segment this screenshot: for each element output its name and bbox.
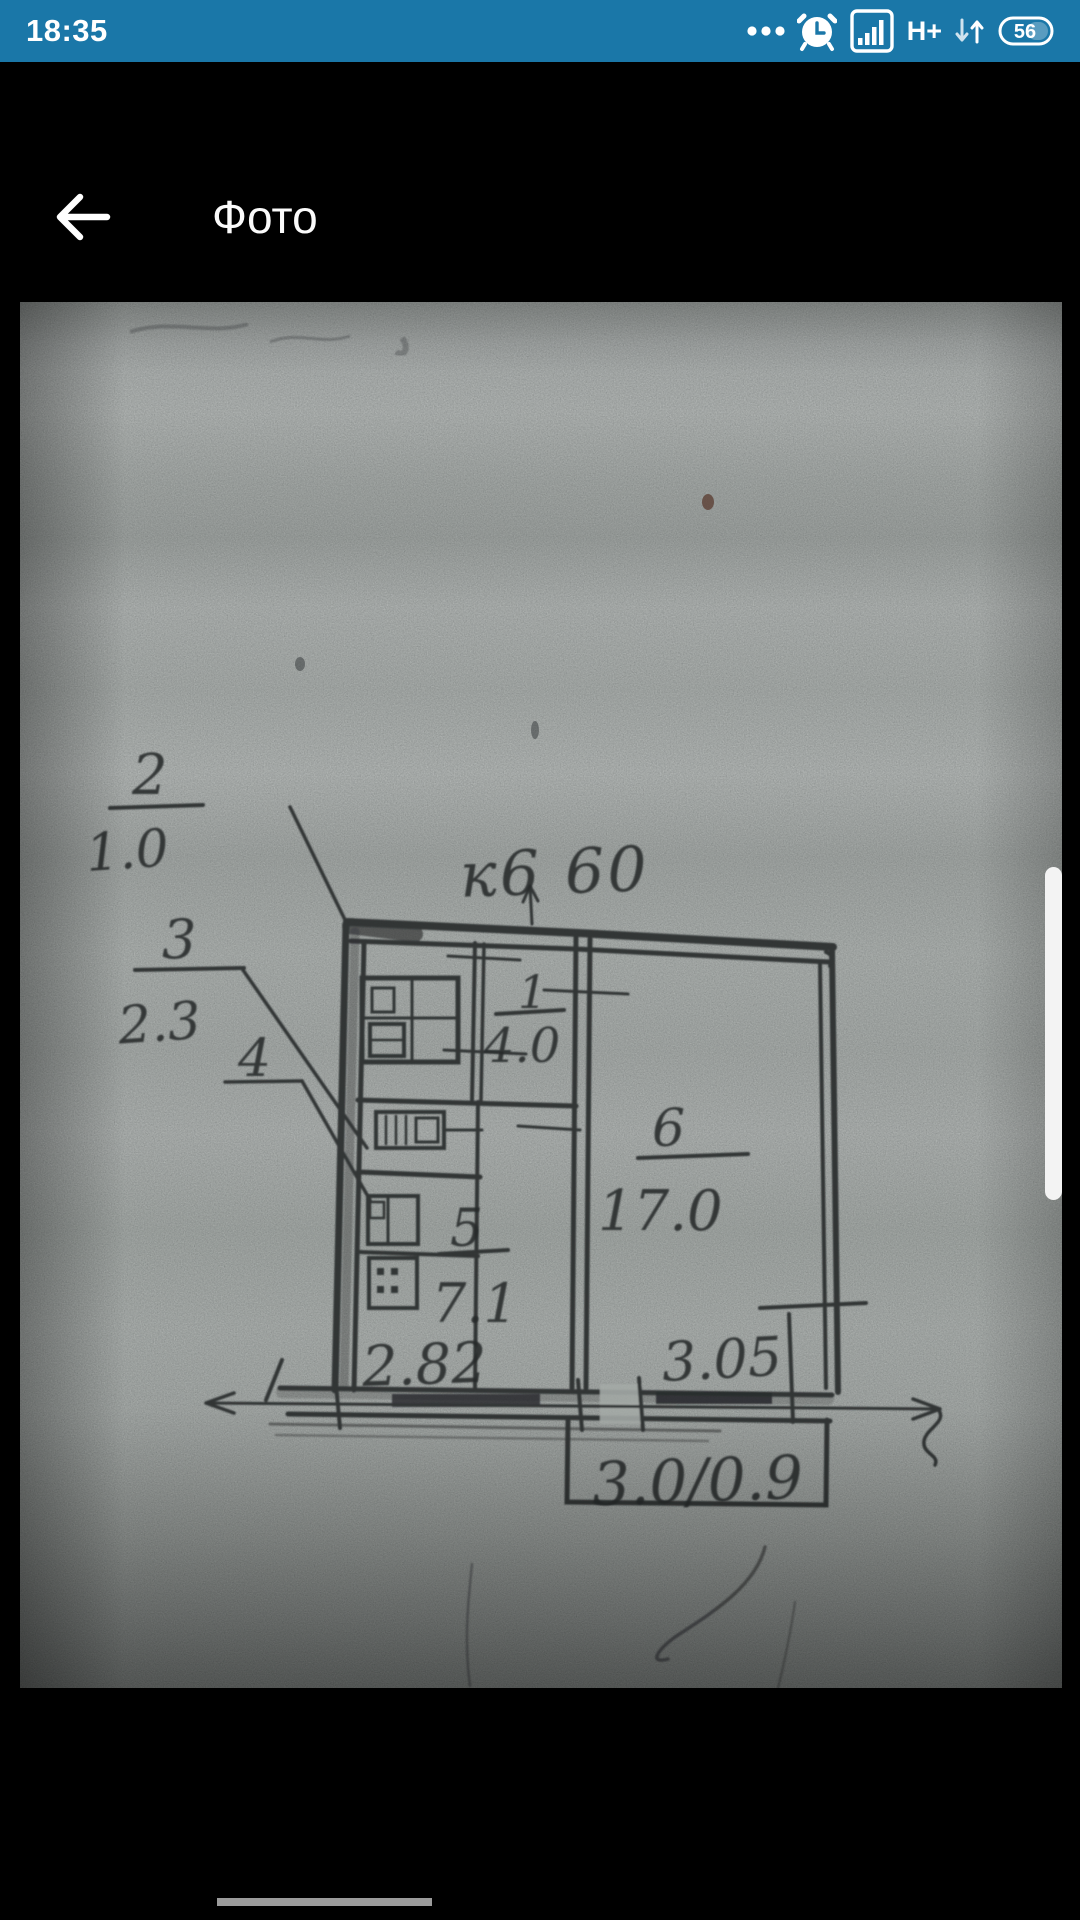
horizontal-scroll-indicator[interactable] xyxy=(217,1898,432,1906)
app-bar: Фото xyxy=(0,62,1080,262)
floor-plan-image: к6 60 2 1.0 3 2.3 4 1 4.0 6 17.0 5 7.1 2… xyxy=(20,302,1062,1688)
clock-time: 18:35 xyxy=(26,13,108,49)
phone-screen: 18:35 H+ xyxy=(0,0,1080,1920)
status-bar: 18:35 H+ xyxy=(0,0,1080,62)
photo-viewer[interactable]: к6 60 2 1.0 3 2.3 4 1 4.0 6 17.0 5 7.1 2… xyxy=(20,302,1062,1688)
battery-indicator: 56 xyxy=(998,16,1054,46)
network-type-label: H+ xyxy=(907,16,942,47)
back-button[interactable] xyxy=(44,187,114,247)
data-arrows-icon xyxy=(954,14,986,48)
battery-percent-text: 56 xyxy=(1014,21,1036,43)
page-title: Фото xyxy=(212,190,318,244)
alarm-clock-icon xyxy=(797,10,837,52)
vertical-scrollbar-thumb[interactable] xyxy=(1045,867,1062,1200)
more-dots-icon xyxy=(747,24,785,38)
signal-strength-icon xyxy=(849,8,895,54)
status-icons: H+ 56 xyxy=(747,8,1054,54)
